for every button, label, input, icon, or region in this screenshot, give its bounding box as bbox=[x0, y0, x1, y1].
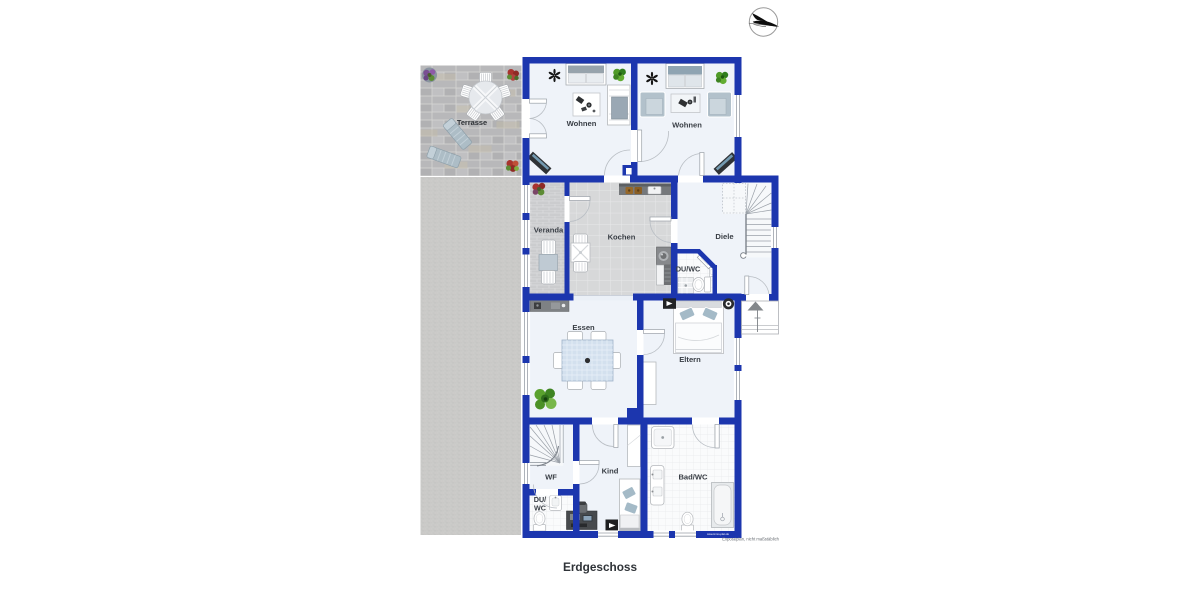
svg-text:www.immo-plan.de: www.immo-plan.de bbox=[707, 532, 729, 536]
svg-text:Kochen: Kochen bbox=[608, 233, 636, 242]
svg-text:WF: WF bbox=[545, 473, 557, 482]
svg-text:Diele: Diele bbox=[715, 232, 733, 241]
svg-text:Exposéplan, nicht maßstäblich: Exposéplan, nicht maßstäblich bbox=[722, 537, 779, 542]
svg-text:Kind: Kind bbox=[602, 467, 619, 476]
svg-text:Eltern: Eltern bbox=[679, 355, 701, 364]
svg-text:WC: WC bbox=[534, 504, 546, 513]
svg-text:Wohnen: Wohnen bbox=[567, 119, 597, 128]
svg-text:Essen: Essen bbox=[572, 323, 595, 332]
svg-text:Erdgeschoss: Erdgeschoss bbox=[563, 560, 638, 574]
svg-text:DU/WC: DU/WC bbox=[676, 265, 700, 274]
svg-text:Terrasse: Terrasse bbox=[457, 118, 487, 127]
svg-text:Bad/WC: Bad/WC bbox=[678, 473, 708, 482]
svg-text:Wohnen: Wohnen bbox=[672, 121, 702, 130]
svg-text:Veranda: Veranda bbox=[534, 226, 564, 235]
